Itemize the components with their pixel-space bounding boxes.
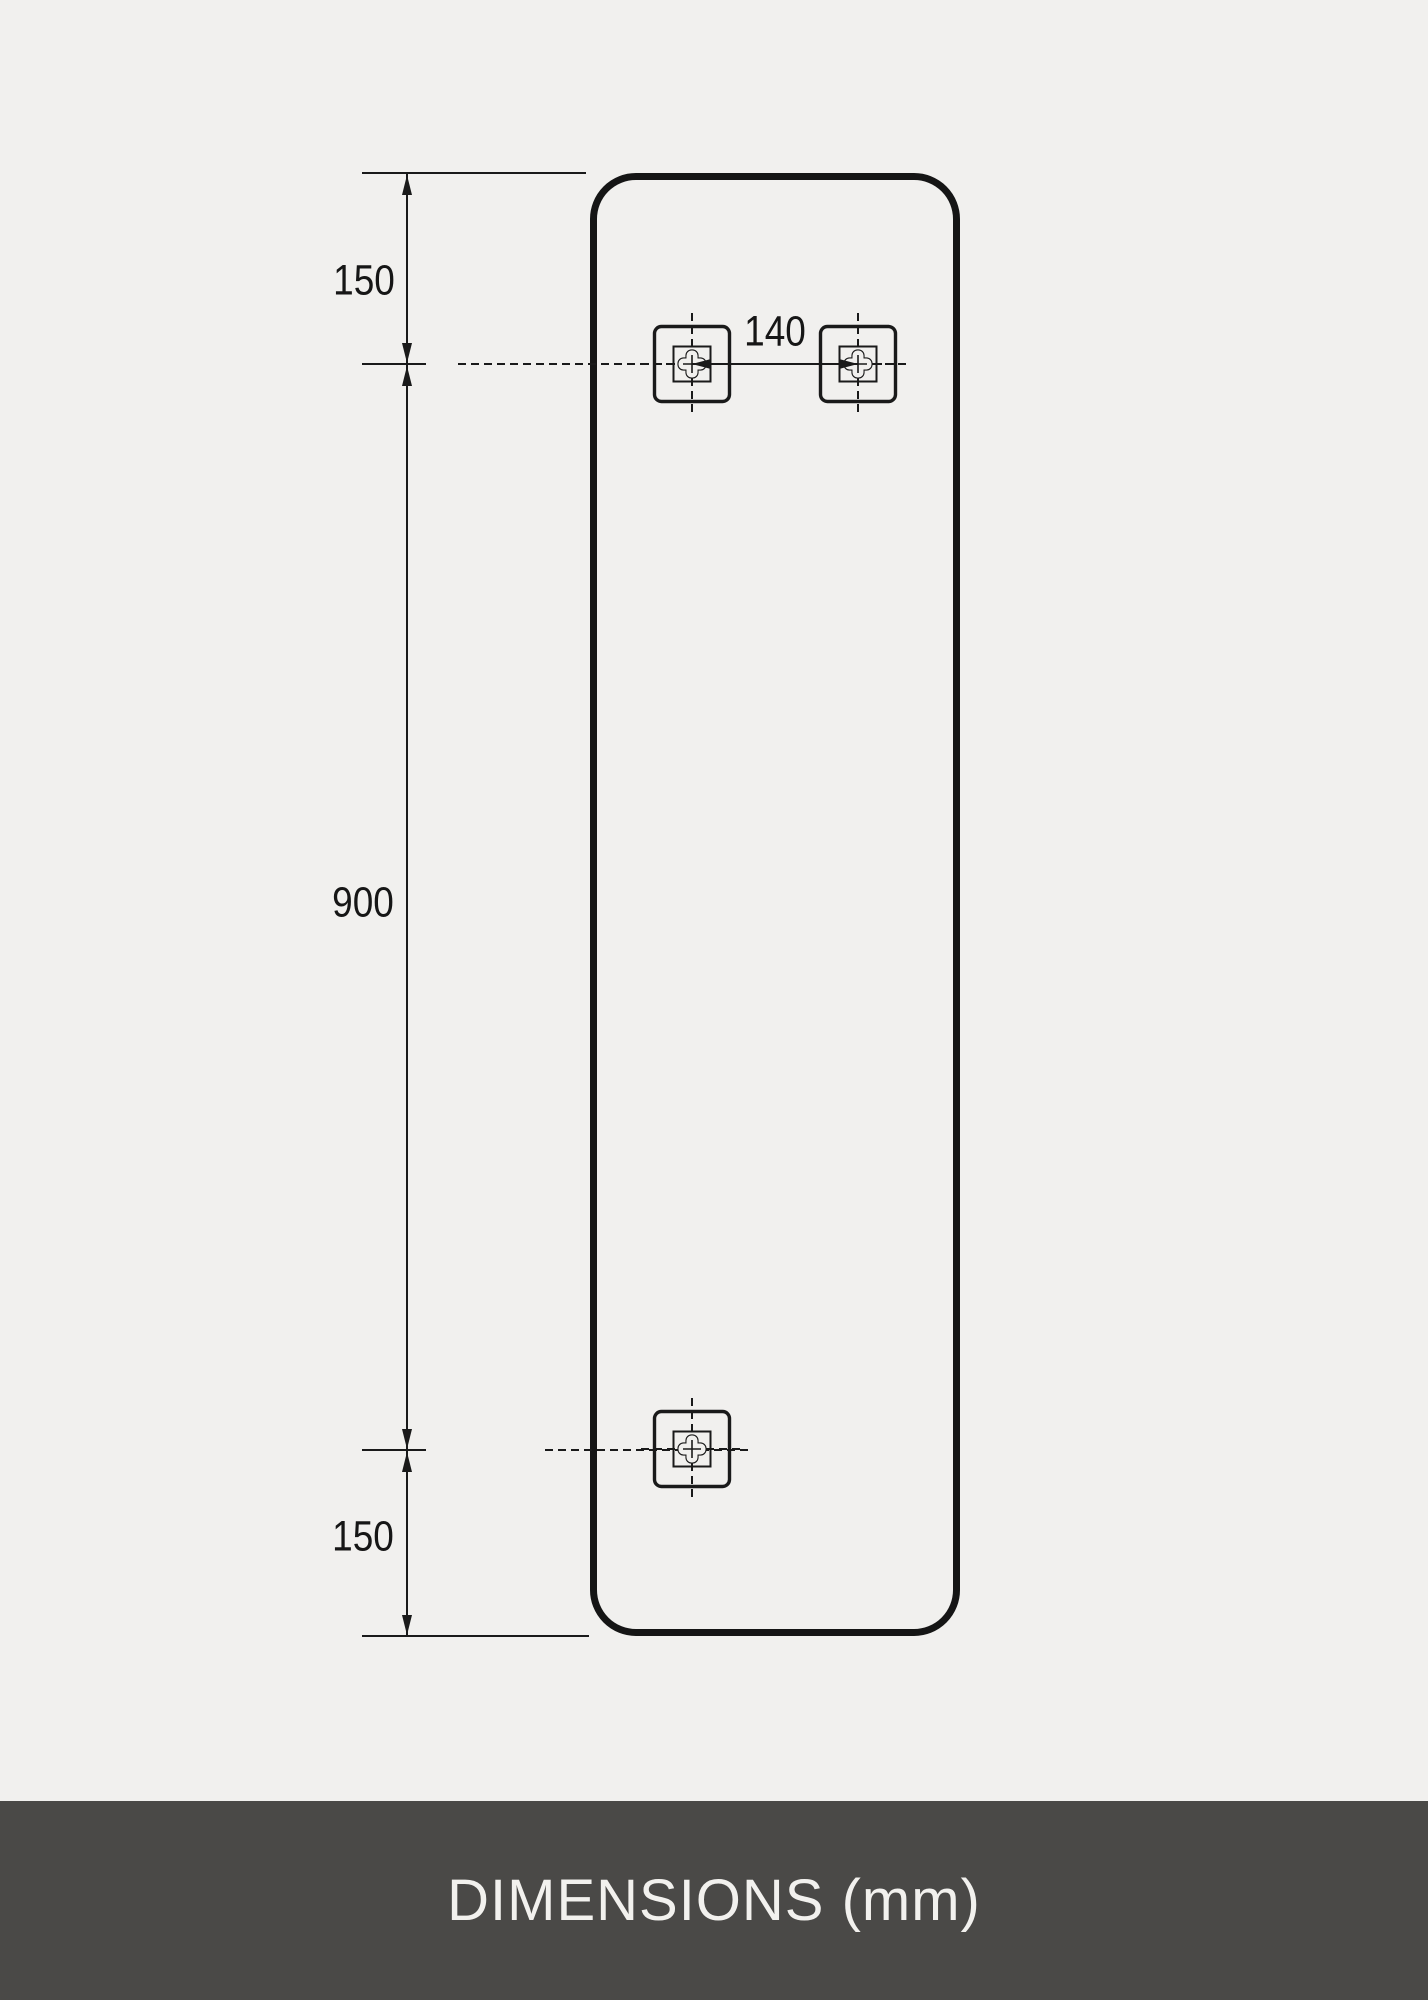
extension-line-upper-bracket bbox=[362, 363, 426, 365]
dimensions-diagram: 150 900 150 140 DIMENSIONS (mm) bbox=[0, 0, 1428, 2000]
arrowhead-up-icon bbox=[402, 366, 412, 386]
footer-title: DIMENSIONS (mm) bbox=[447, 1867, 981, 1934]
dimension-line-bracket-spacing bbox=[692, 363, 858, 365]
arrowhead-down-icon bbox=[402, 1615, 412, 1635]
arrowhead-up-icon bbox=[402, 175, 412, 195]
extension-line-lower-bracket bbox=[362, 1449, 426, 1451]
label-bottom-offset: 150 bbox=[332, 1516, 394, 1559]
arrowhead-up-icon bbox=[402, 1452, 412, 1472]
extension-line-bottom bbox=[362, 1635, 589, 1637]
arrowhead-left-icon bbox=[692, 359, 711, 369]
arrowhead-down-icon bbox=[402, 1429, 412, 1449]
footer-banner: DIMENSIONS (mm) bbox=[0, 1801, 1428, 2000]
label-top-offset: 150 bbox=[333, 260, 395, 303]
mount-bracket-icon bbox=[641, 1398, 743, 1500]
extension-line-top bbox=[362, 172, 586, 174]
label-bracket-spacing: 140 bbox=[744, 311, 806, 354]
arrowhead-down-icon bbox=[402, 343, 412, 363]
dimension-line-vertical bbox=[406, 173, 408, 1637]
label-panel-length: 900 bbox=[332, 882, 394, 925]
arrowhead-right-icon bbox=[839, 359, 858, 369]
